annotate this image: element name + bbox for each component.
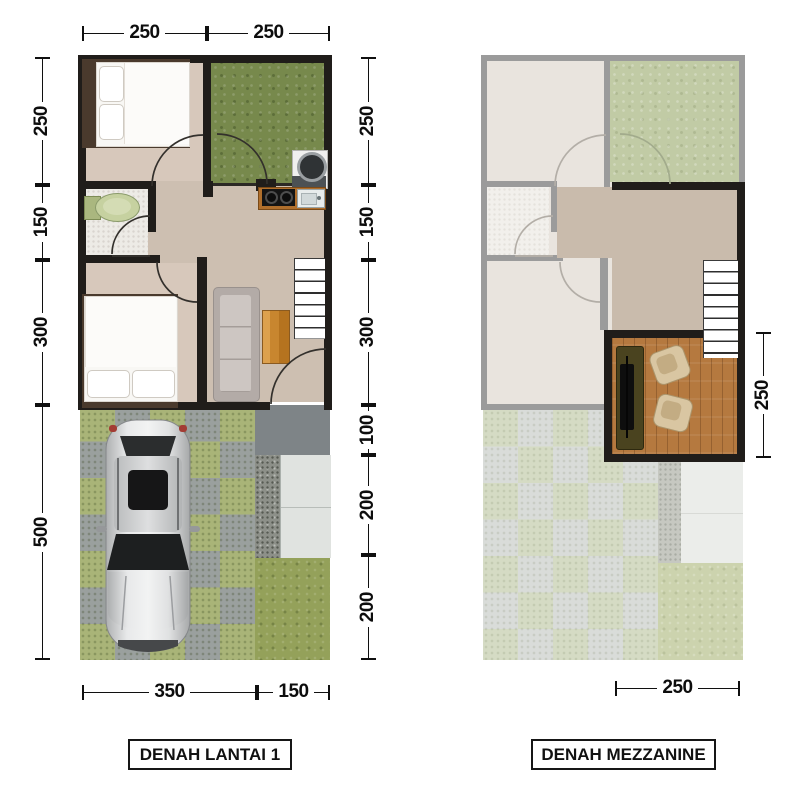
mezzanine-wall-right (737, 182, 745, 462)
mezzanine-title: DENAH MEZZANINE (531, 739, 716, 770)
pavement-strip (255, 405, 330, 455)
dim-label: 350 (154, 681, 184, 703)
faded-bath-wall-bottom (481, 255, 563, 261)
dim-right-3: 300 (360, 260, 376, 405)
car-icon (96, 416, 200, 654)
dim-label: 300 (357, 317, 379, 347)
faded-wall-top (481, 55, 745, 61)
faded-wall-right (739, 55, 745, 185)
dim-right-4: 100 (360, 405, 376, 455)
faded-bedroom2-wall (600, 257, 608, 330)
dim-label: 250 (31, 106, 53, 136)
dim-left-1: 250 (34, 57, 50, 185)
outer-wall-right (324, 55, 332, 410)
faded-wall-left (481, 55, 487, 410)
floor1-title-text: DENAH LANTAI 1 (140, 745, 280, 765)
dim-label: 200 (357, 592, 379, 622)
dim-left-2: 150 (34, 185, 50, 260)
faded-bathroom (487, 187, 549, 255)
dim-right-6: 200 (360, 555, 376, 660)
gravel-strip (255, 455, 280, 558)
dim-right-1: 250 (360, 57, 376, 185)
mezz-dim-bottom: 250 (615, 680, 740, 696)
family-room-wall-bottom (604, 454, 745, 462)
dim-top-2: 250 (207, 25, 330, 41)
garden-grass (255, 558, 330, 660)
floor-plan-sheet: 250 250 250 150 300 500 250 150 300 100 … (0, 0, 800, 800)
dim-right-2: 150 (360, 185, 376, 260)
dim-label: 300 (31, 317, 53, 347)
sink-icon (297, 189, 325, 208)
faded-grass (658, 563, 743, 660)
dim-bottom-1: 350 (82, 684, 257, 700)
family-room-wall-left (604, 330, 612, 462)
stairs-icon (294, 258, 325, 339)
dim-label: 150 (357, 207, 379, 237)
dim-left-3: 300 (34, 260, 50, 405)
dim-label: 250 (662, 677, 692, 699)
dim-label: 150 (278, 681, 308, 703)
bathroom-wall-bottom (78, 255, 160, 263)
mezzanine-landing-floor (557, 187, 612, 258)
mezzanine-title-text: DENAH MEZZANINE (541, 745, 705, 765)
faded-garden (610, 61, 739, 182)
mezzanine-wall-top (612, 182, 745, 190)
wall-stub-a (203, 181, 213, 197)
stove-icon (262, 189, 295, 206)
dim-top-1: 250 (82, 25, 207, 41)
faded-gravel (658, 462, 681, 563)
outer-wall-bottom-stub (326, 402, 332, 410)
dim-right-5: 200 (360, 455, 376, 555)
coffee-table-icon (262, 310, 290, 364)
bedroom1-wall (78, 181, 152, 189)
dim-label: 250 (752, 380, 774, 410)
faded-bedroom1-wall (481, 181, 555, 187)
floor1-title: DENAH LANTAI 1 (128, 739, 292, 770)
stepping-tiles (280, 455, 331, 558)
bedroom1-garden-wall (203, 55, 211, 189)
dim-label: 500 (31, 517, 53, 547)
bathroom-wall-right (148, 181, 156, 232)
dim-left-4: 500 (34, 405, 50, 660)
faded-stepping-tiles (681, 462, 743, 563)
dim-bottom-2: 150 (257, 684, 330, 700)
dim-label: 250 (357, 106, 379, 136)
faded-garden-wall (604, 55, 610, 187)
dim-label: 250 (253, 22, 283, 44)
family-room-wall-top (604, 330, 703, 338)
stairs-icon (703, 260, 738, 358)
dim-label: 100 (357, 415, 379, 445)
mezz-dim-right: 250 (755, 332, 771, 458)
dim-label: 200 (357, 490, 379, 520)
faded-wall-bottom (481, 404, 608, 410)
bedroom2-wall-right (197, 257, 207, 410)
dim-label: 150 (31, 207, 53, 237)
dim-label: 250 (129, 22, 159, 44)
